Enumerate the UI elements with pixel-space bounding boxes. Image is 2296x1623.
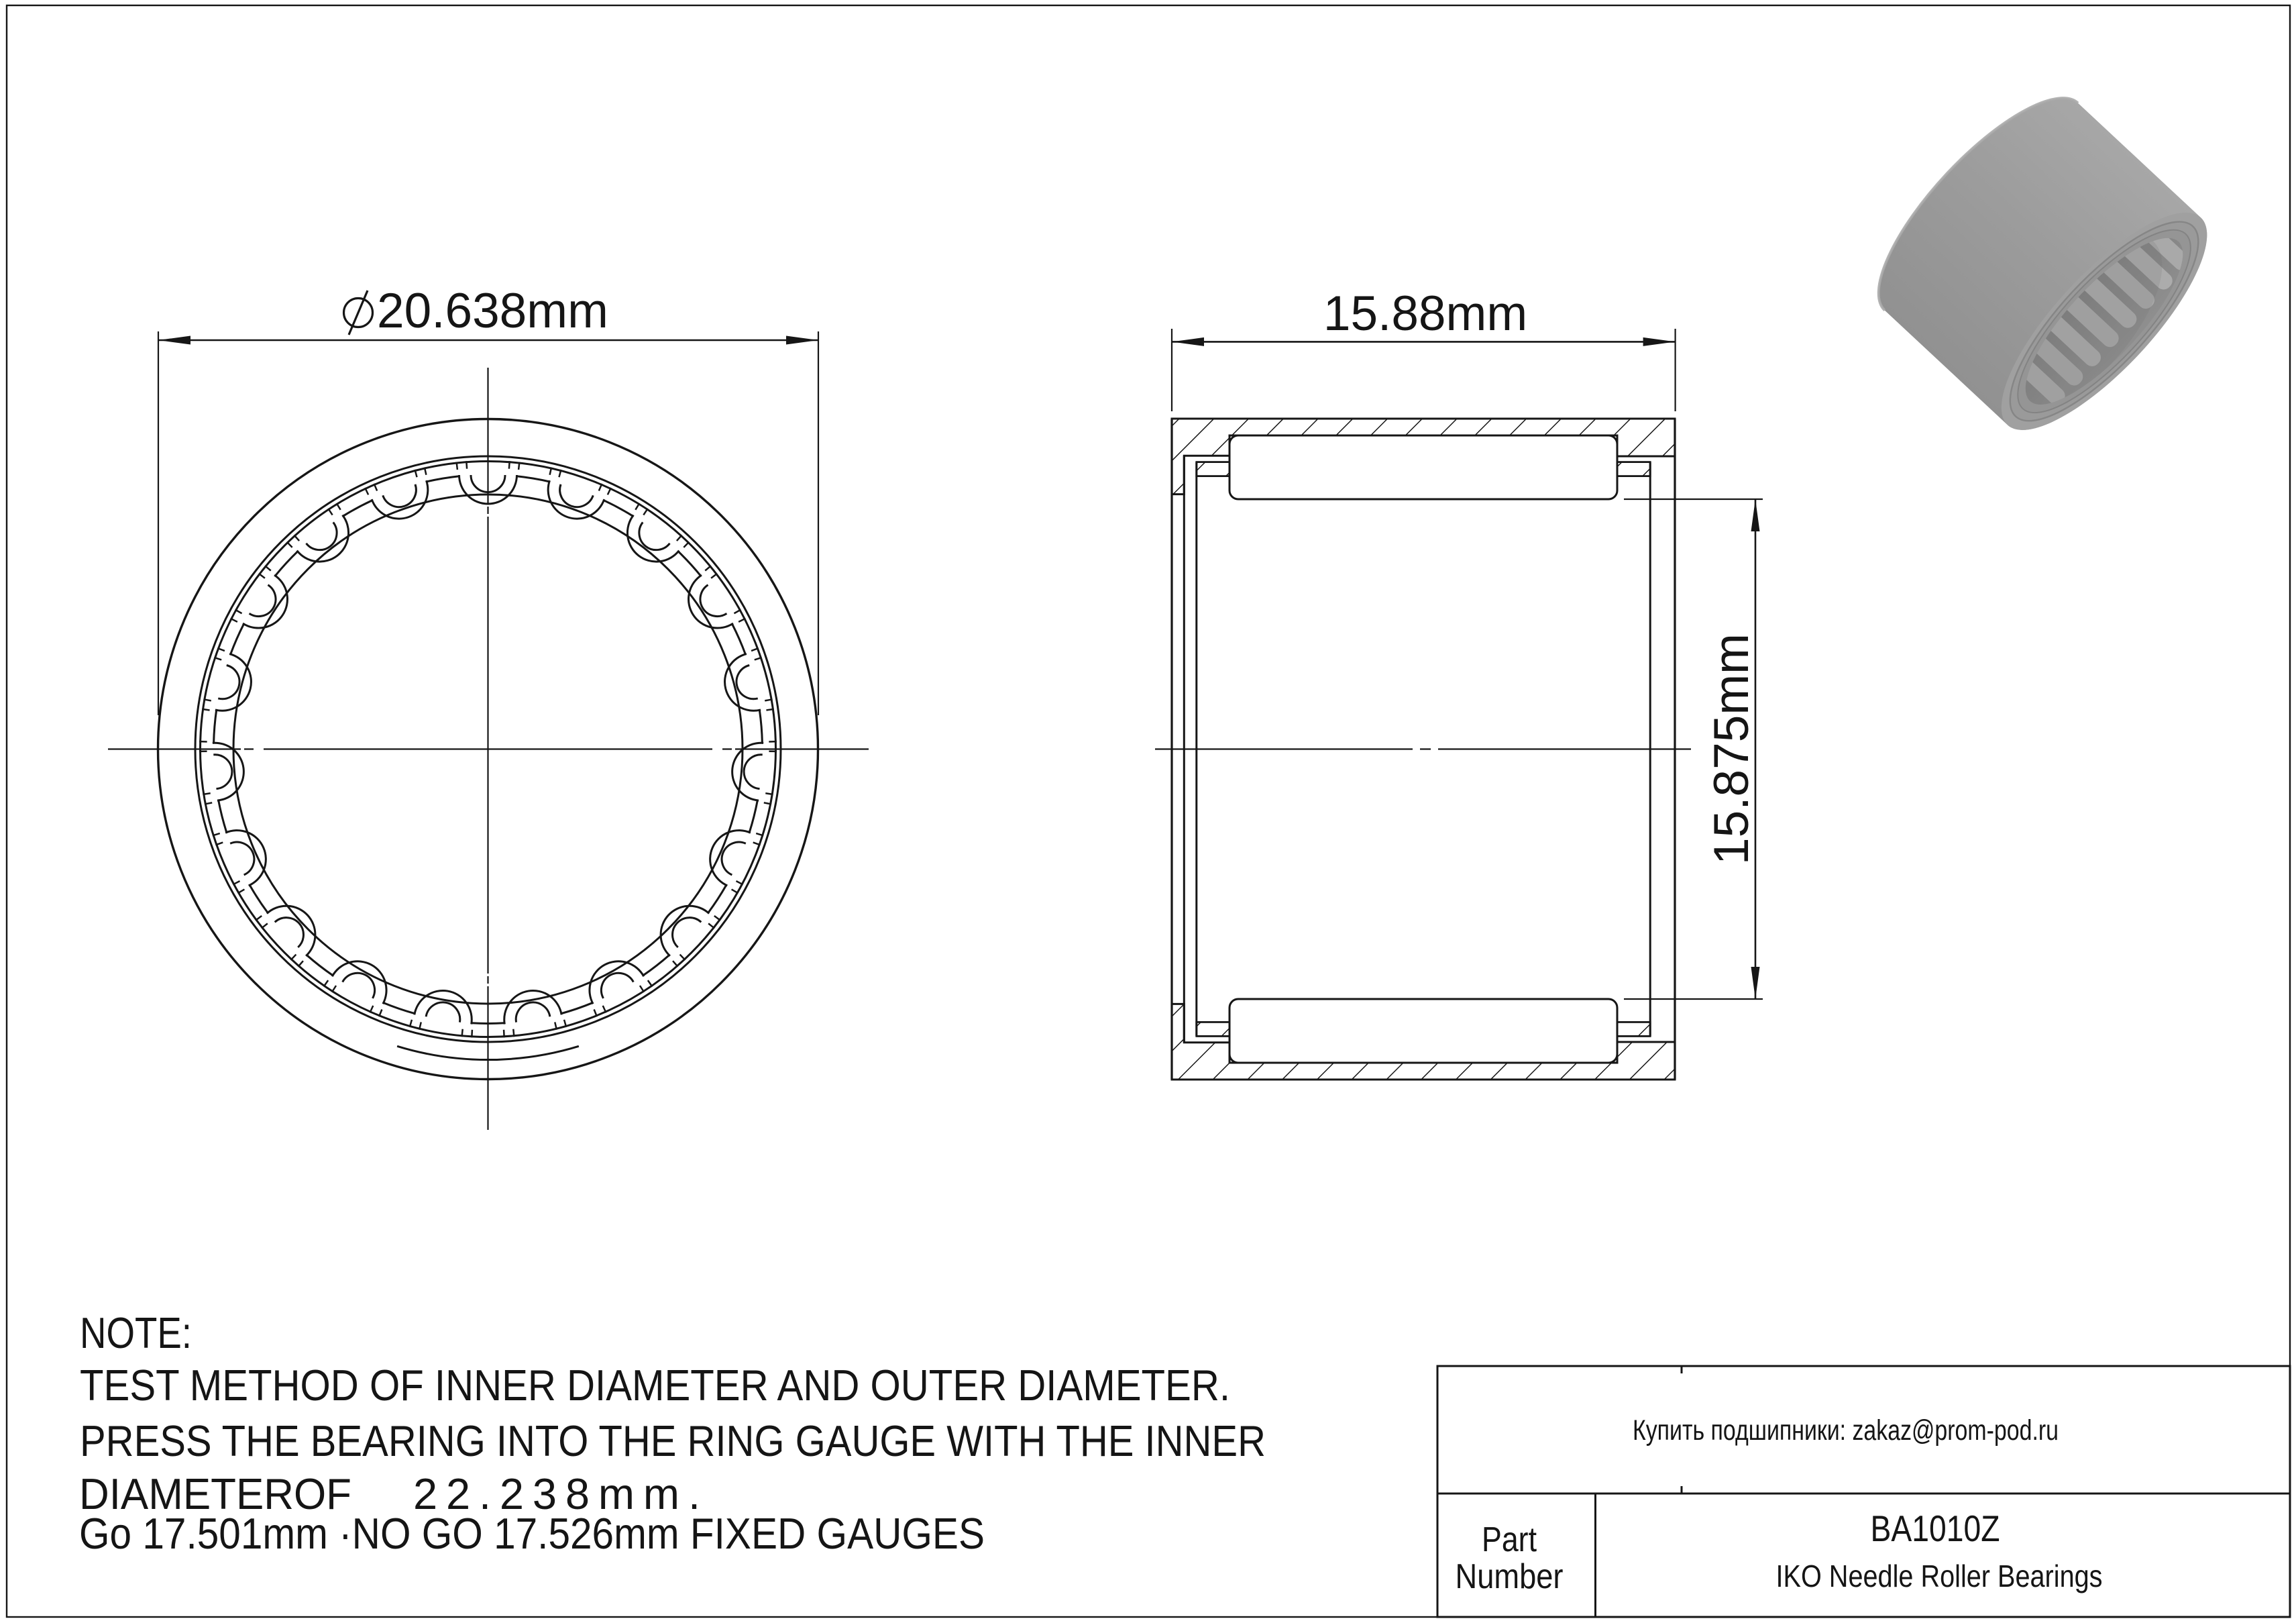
svg-text:BA1010Z: BA1010Z [1871,1508,2000,1549]
svg-text:Number: Number [1456,1557,1564,1596]
svg-text:NOTE:: NOTE: [80,1308,192,1357]
svg-text:Купить подшипники: zakaz@prom-: Купить подшипники: zakaz@prom-pod.ru [1633,1414,2059,1447]
svg-text:15.875mm: 15.875mm [1704,633,1759,865]
svg-text:IKO Needle Roller Bearings: IKO Needle Roller Bearings [1776,1559,2103,1593]
svg-text:Part: Part [1482,1520,1537,1559]
svg-text:PRESS THE BEARING INTO THE RIN: PRESS THE BEARING INTO THE RING GAUGE WI… [80,1416,1266,1465]
svg-text:15.88mm: 15.88mm [1323,286,1527,341]
svg-text:Go 17.501mm ·NO GO 17.526mm FI: Go 17.501mm ·NO GO 17.526mm FIXED GAUGES [79,1509,985,1558]
svg-text:20.638mm: 20.638mm [377,284,608,338]
svg-text:TEST METHOD OF INNER DIAMETER: TEST METHOD OF INNER DIAMETER AND OUTER … [80,1361,1230,1410]
